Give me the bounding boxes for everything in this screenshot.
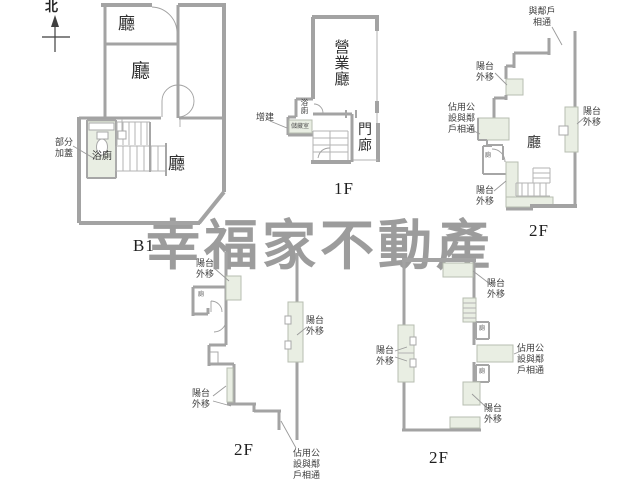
2f-upper-balcony-right-label: 陽台 外移 xyxy=(583,106,601,128)
north-arrow xyxy=(42,15,70,52)
north-label: 北 xyxy=(45,1,58,12)
2f-upper-toilet-label: 廁 xyxy=(485,153,491,159)
2f-lowerright-caption: 2F xyxy=(429,449,449,466)
plan-strip-walls xyxy=(281,253,307,448)
2f-upper-balcony-bottom-label: 陽台 外移 xyxy=(476,185,494,207)
2f-upper-public-occupy-label: 佔用公 設與鄰 戶相通 xyxy=(448,102,475,135)
plan-b1-walls xyxy=(73,3,224,223)
2f-lowerright-toilet-bottom-label: 廁 xyxy=(479,369,485,375)
2f-lowerleft-caption: 2F xyxy=(234,441,254,458)
floorplan-drawing: .w4{stroke:#a3a3a3;stroke-width:4;fill:n… xyxy=(0,0,640,480)
2f-upper-balcony-top-label: 陽台 外移 xyxy=(476,61,494,83)
strip-public-occupy-label: 佔用公 設與鄰 戶相通 xyxy=(293,448,320,480)
1f-caption: 1F xyxy=(334,180,354,197)
1f-bath-label: 浴 廁 xyxy=(300,99,309,115)
2f-lowerright-public-occupy-label: 佔用公 設與鄰 戶相通 xyxy=(517,343,544,376)
1f-addition-label: 增建 xyxy=(256,112,274,123)
2f-lowerleft-balcony-top-label: 陽台 外移 xyxy=(196,258,214,280)
2f-upper-hall-label: 廳 xyxy=(527,135,541,149)
b1-hall-top-label: 廳 xyxy=(118,15,135,33)
b1-bath-label: 浴廁 xyxy=(88,152,116,162)
2f-lowerleft-toilet-label: 廁 xyxy=(198,292,204,298)
2f-lowerleft-balcony-bottom-label: 陽台 外移 xyxy=(192,388,210,410)
1f-porch-label: 門 廊 xyxy=(357,121,373,153)
b1-hall-low-label: 廳 xyxy=(168,155,185,173)
2f-lowerright-balcony-left-label: 陽台 外移 xyxy=(376,345,394,367)
1f-business-hall-label: 營 業 廳 xyxy=(333,40,351,88)
2f-lowerright-balcony-bottom-label: 陽台 外移 xyxy=(484,403,502,425)
strip-balcony-label: 陽台 外移 xyxy=(306,315,324,337)
2f-lowerright-toilet-top-label: 廁 xyxy=(479,326,485,332)
floorplan-sheet: 幸福家不動產 .w4{stroke:#a3a3a3;stroke-width:4… xyxy=(0,0,640,480)
2f-upper-neighbor-label: 與鄰戶 相通 xyxy=(526,6,558,28)
plan-2f-upper-walls xyxy=(468,27,585,209)
2f-lowerright-balcony-top-label: 陽台 外移 xyxy=(487,278,505,300)
b1-partial-addition-label: 部分 加蓋 xyxy=(55,137,73,159)
1f-storage-label: 儲藏室 xyxy=(291,124,309,130)
b1-caption: B1 xyxy=(133,237,155,254)
2f-upper-caption: 2F xyxy=(529,222,549,239)
b1-hall-mid-label: 廳 xyxy=(131,62,150,81)
